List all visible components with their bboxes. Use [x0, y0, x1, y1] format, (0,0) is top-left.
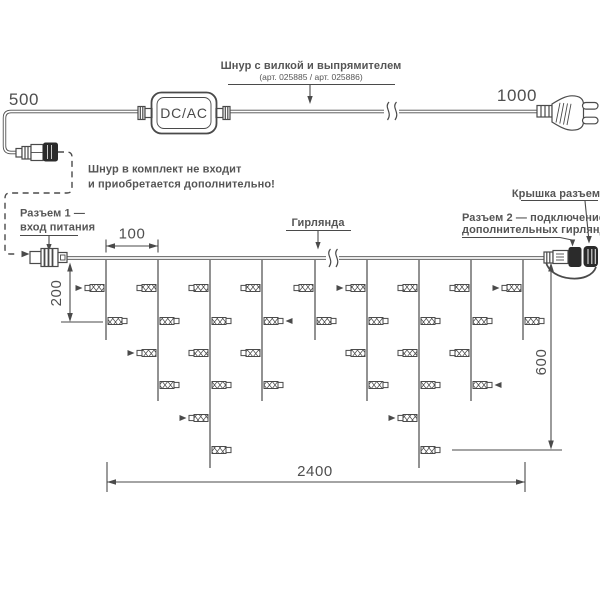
lamp-cap-icon: [398, 350, 403, 355]
dimension-2400: 2400: [107, 462, 525, 492]
dimension-100: 100: [106, 226, 158, 253]
lamp-icon: [421, 447, 435, 454]
lamp-icon: [160, 382, 174, 389]
lamp-cap-icon: [278, 382, 283, 387]
connector-cap: [569, 247, 582, 267]
drops-layer: [76, 260, 545, 468]
connector2-line1: Разъем 2 — подключение: [462, 212, 600, 224]
garland-diagram: DC/AC 500 1000 Шнур с вилкой и выпрямите…: [0, 0, 600, 600]
icicle-drop: [128, 260, 180, 401]
lamp-icon: [455, 350, 469, 357]
connector1-line1: Разъем 1 —: [20, 208, 85, 220]
lamp-arrow-icon: [286, 318, 293, 324]
lamp-icon: [351, 285, 365, 292]
lamp-icon: [317, 318, 331, 325]
lamp-icon: [507, 285, 521, 292]
lamp-icon: [246, 285, 260, 292]
lamp-arrow-icon: [128, 350, 135, 356]
icicle-drop: [450, 260, 502, 401]
cap-label-text: Крышка разъема: [512, 188, 600, 200]
lamp-arrow-icon: [389, 415, 396, 421]
lamp-icon: [369, 382, 383, 389]
lamp-cap-icon: [137, 285, 142, 290]
connector2-line2: дополнительных гирлянд: [462, 224, 600, 236]
lamp-cap-icon: [383, 382, 388, 387]
cord-label: Шнур с вилкой и выпрямителем (арт. 02588…: [221, 60, 402, 104]
lamp-cap-icon: [502, 285, 507, 290]
cord-break-icon: [387, 102, 397, 120]
lamp-cap-icon: [122, 318, 127, 323]
dcac-label: DC/AC: [160, 105, 208, 121]
lamp-cap-icon: [137, 350, 142, 355]
lamp-arrow-icon: [180, 415, 187, 421]
lamp-icon: [90, 285, 104, 292]
lamp-arrow-icon: [495, 382, 502, 388]
lamp-icon: [455, 285, 469, 292]
dim-200-value: 200: [48, 280, 65, 307]
icicle-drop: [180, 260, 232, 468]
lamp-icon: [194, 415, 208, 422]
icicle-drop: [337, 260, 389, 401]
lamp-cap-icon: [539, 318, 544, 323]
lamp-cap-icon: [398, 285, 403, 290]
connector-2: [544, 246, 598, 279]
garland-label: Гирлянда: [286, 217, 351, 250]
lamp-arrow-icon: [493, 285, 500, 291]
dimension-200: 200: [48, 263, 103, 323]
dim-600-value: 600: [533, 349, 550, 376]
note-label: Шнур в комплект не входит и приобретаетс…: [88, 164, 275, 191]
lamp-icon: [246, 350, 260, 357]
connector1-line2: вход питания: [20, 222, 95, 234]
lamp-cap-icon: [226, 318, 231, 323]
icicle-drop: [294, 260, 336, 340]
lamp-icon: [403, 415, 417, 422]
dim-1000-value: 1000: [497, 86, 537, 105]
lamp-cap-icon: [174, 382, 179, 387]
lamp-icon: [525, 318, 539, 325]
icicle-drop: [389, 260, 441, 468]
dcac-converter: DC/AC: [138, 93, 230, 134]
garland-wire: [67, 249, 544, 267]
lamp-icon: [142, 350, 156, 357]
lamp-icon: [421, 382, 435, 389]
lamp-cap-icon: [331, 318, 336, 323]
lamp-icon: [194, 285, 208, 292]
lamp-cap-icon: [294, 285, 299, 290]
lamp-cap-icon: [435, 447, 440, 452]
dashed-leader: [5, 152, 72, 257]
lamp-cap-icon: [189, 415, 194, 420]
lamp-cap-icon: [487, 382, 492, 387]
note-line2: и приобретается дополнительно!: [88, 179, 275, 191]
lamp-cap-icon: [226, 382, 231, 387]
dim-100-value: 100: [119, 226, 146, 243]
cord-connector-icon: [16, 143, 58, 162]
lamp-cap-icon: [383, 318, 388, 323]
lamp-cap-icon: [346, 350, 351, 355]
lamp-arrow-icon: [337, 285, 344, 291]
diagram-canvas: DC/AC 500 1000 Шнур с вилкой и выпрямите…: [0, 0, 600, 600]
lamp-icon: [212, 447, 226, 454]
lamp-cap-icon: [241, 350, 246, 355]
garland-label-text: Гирлянда: [291, 217, 345, 229]
lamp-cap-icon: [174, 318, 179, 323]
lamp-icon: [212, 318, 226, 325]
lamp-cap-icon: [450, 350, 455, 355]
lamp-cap-icon: [398, 415, 403, 420]
lamp-cap-icon: [189, 285, 194, 290]
lamp-cap-icon: [450, 285, 455, 290]
lamp-cap-icon: [435, 318, 440, 323]
lamp-cap-icon: [346, 285, 351, 290]
lamp-cap-icon: [278, 318, 283, 323]
cord-label-subtitle: (арт. 025885 / арт. 025886): [259, 72, 363, 82]
lamp-icon: [299, 285, 313, 292]
dim-2400-value: 2400: [297, 463, 333, 480]
lamp-cap-icon: [487, 318, 492, 323]
power-plug-icon: [537, 96, 598, 130]
lamp-cap-icon: [189, 350, 194, 355]
lamp-icon: [403, 350, 417, 357]
lamp-arrow-icon: [76, 285, 83, 291]
lamp-icon: [351, 350, 365, 357]
icicle-drop: [493, 260, 545, 340]
note-line1: Шнур в комплект не входит: [88, 164, 242, 176]
wire-break-icon: [329, 249, 338, 267]
lamp-icon: [142, 285, 156, 292]
cord-label-title: Шнур с вилкой и выпрямителем: [221, 60, 402, 72]
lamp-icon: [369, 318, 383, 325]
lamp-icon: [473, 382, 487, 389]
lamp-icon: [194, 350, 208, 357]
power-cord: [5, 102, 539, 153]
lamp-icon: [160, 318, 174, 325]
lamp-icon: [108, 318, 122, 325]
connector-1: [30, 249, 67, 267]
lamp-icon: [212, 382, 226, 389]
connector2-label: Разъем 2 — подключение дополнительных ги…: [462, 212, 600, 247]
lamp-icon: [421, 318, 435, 325]
lamp-cap-icon: [241, 285, 246, 290]
lamp-cap-icon: [226, 447, 231, 452]
lamp-icon: [473, 318, 487, 325]
lamp-icon: [264, 382, 278, 389]
lamp-icon: [403, 285, 417, 292]
icicle-drop: [241, 260, 293, 401]
connector1-label: Разъем 1 — вход питания: [20, 208, 95, 252]
lamp-cap-icon: [85, 285, 90, 290]
dim-500-value: 500: [9, 90, 39, 109]
lamp-icon: [264, 318, 278, 325]
lamp-cap-icon: [435, 382, 440, 387]
icicle-drop: [76, 260, 128, 340]
